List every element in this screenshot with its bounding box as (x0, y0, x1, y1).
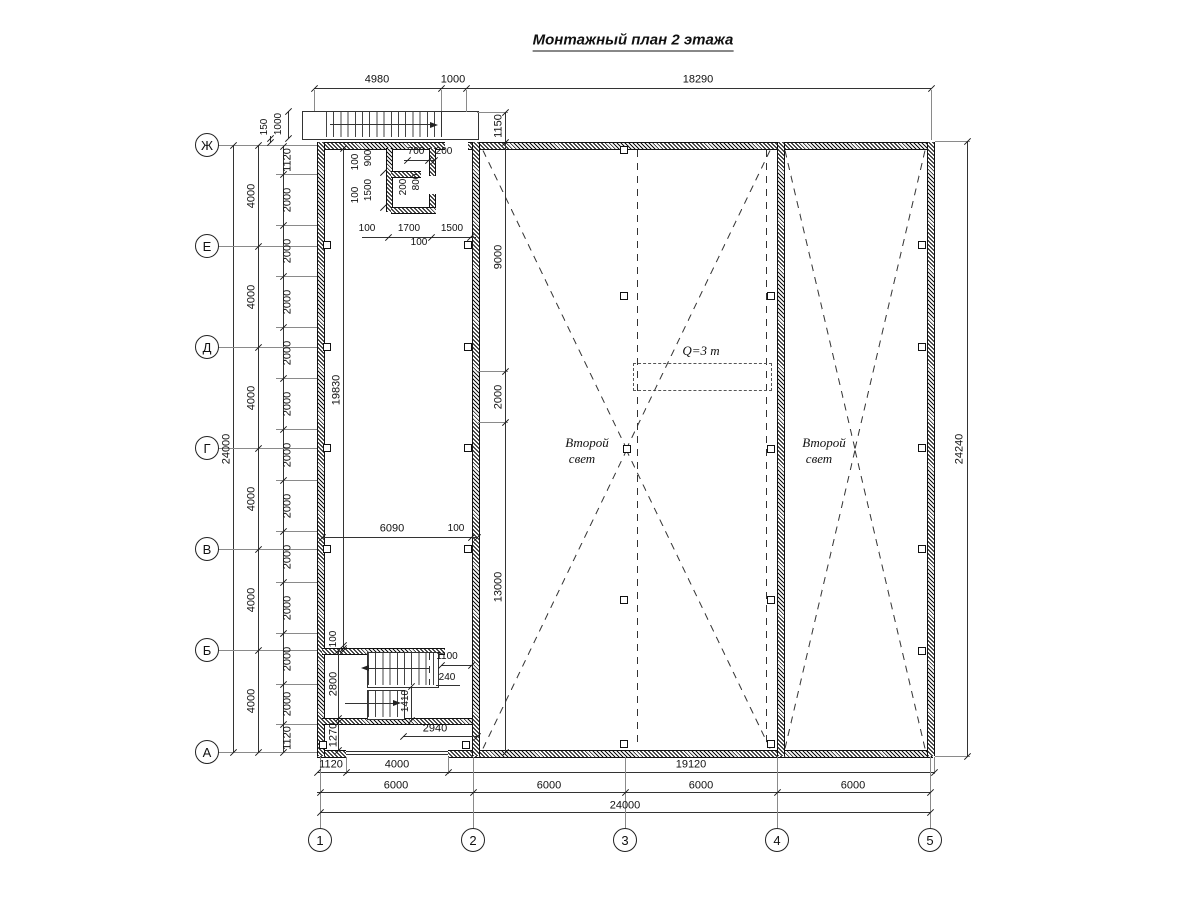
second-light-label: свет (806, 451, 832, 467)
pilaster-marker (918, 241, 926, 249)
dim-label: 4000 (247, 285, 258, 309)
pilaster-marker (319, 741, 327, 749)
dim-label: 100 (351, 187, 361, 204)
dim-label: 4000 (247, 689, 258, 713)
dim-label: 2000 (494, 385, 505, 409)
stair-direction-arrow (430, 122, 438, 128)
dim-line (505, 112, 506, 752)
brace-line (785, 449, 856, 748)
stair-direction-arrow (361, 665, 369, 671)
dim-label: 1500 (441, 224, 463, 234)
dim-label: 2000 (283, 596, 294, 620)
column-marker (620, 146, 628, 154)
dim-line (288, 111, 289, 138)
axis-leader (218, 650, 317, 651)
dim-label: 4000 (247, 588, 258, 612)
pilaster-marker (918, 545, 926, 553)
dim-label: 2000 (283, 494, 294, 518)
pilaster-marker (918, 647, 926, 655)
dim-label: 2000 (283, 290, 294, 314)
pilaster-marker (464, 343, 472, 351)
pilaster-marker (464, 545, 472, 553)
extension-line (441, 90, 442, 111)
axis-circle-row: Б (195, 638, 219, 662)
pilaster-marker (323, 545, 331, 553)
dim-label: 240 (439, 673, 456, 683)
stair-break-line (429, 653, 430, 685)
dim-label: 100 (448, 524, 465, 534)
room-wall-bottom (391, 207, 436, 214)
dim-label: 24000 (222, 434, 233, 465)
dim-label: 6000 (689, 781, 713, 792)
south-opening-line (346, 751, 448, 752)
dim-label: 4000 (247, 487, 258, 511)
dim-line (441, 665, 471, 666)
dim-label: 6000 (841, 781, 865, 792)
dim-label: 1120 (283, 726, 294, 750)
dim-label: 6090 (380, 524, 404, 535)
dim-label: 2000 (283, 239, 294, 263)
dim-label: 200 (436, 147, 453, 157)
brace-line (785, 150, 856, 449)
dim-label: 6000 (384, 781, 408, 792)
brace-line (854, 150, 925, 449)
crane-bridge (633, 363, 772, 391)
wall-axis-4 (777, 142, 785, 756)
axis-circle-col: 5 (918, 828, 942, 852)
dim-tick (931, 769, 938, 776)
dim-line (403, 736, 477, 737)
pilaster-marker (323, 343, 331, 351)
dim-label: 100 (329, 631, 339, 648)
pilaster-marker (323, 241, 331, 249)
dim-label: 4980 (365, 75, 389, 86)
dim-label: 4000 (247, 386, 258, 410)
dim-label: 2000 (283, 647, 294, 671)
axis-circle-col: 4 (765, 828, 789, 852)
dim-label: 19120 (676, 760, 707, 771)
wall-south-main (448, 750, 933, 758)
dim-label: 100 (359, 224, 376, 234)
axis-leader (218, 448, 317, 449)
axis-circle-row: А (195, 740, 219, 764)
axis-leader (218, 549, 317, 550)
dim-label: 2000 (283, 392, 294, 416)
pilaster-marker (323, 444, 331, 452)
column-marker (767, 740, 775, 748)
dim-label: 1120 (319, 760, 343, 771)
axis-circle-col: 3 (613, 828, 637, 852)
dim-line (967, 141, 968, 756)
top-stair-direction-line (330, 124, 434, 125)
dim-label: 1120 (283, 148, 294, 172)
axis-circle-row: Ж (195, 133, 219, 157)
axis-circle-row: В (195, 537, 219, 561)
top-stair-edge (441, 112, 442, 137)
dim-label: 13000 (494, 572, 505, 603)
wall-north-main (468, 142, 933, 150)
brace-line (626, 449, 771, 749)
axis-leader (218, 246, 317, 247)
dim-label: 2000 (283, 443, 294, 467)
dim-label: 200 (399, 179, 409, 196)
pilaster-marker (918, 444, 926, 452)
stair-upper-treads (368, 653, 436, 685)
room-wall-left (386, 148, 393, 212)
dim-label: 1000 (274, 113, 284, 135)
dim-line (411, 686, 412, 720)
dim-label: 150 (260, 119, 270, 136)
dim-label: 1150 (494, 114, 505, 138)
stair-direction-line (368, 668, 430, 669)
dim-label: 19830 (332, 375, 343, 406)
pilaster-marker (464, 241, 472, 249)
dim-label: 1500 (364, 179, 374, 201)
second-light-label: Второй (565, 435, 609, 451)
dim-label: 6000 (537, 781, 561, 792)
pilaster-marker (464, 444, 472, 452)
axis-leader (218, 347, 317, 348)
brace-line (626, 150, 771, 450)
dim-label: 4000 (385, 760, 409, 771)
wall-east (927, 142, 935, 756)
second-light-label: свет (569, 451, 595, 467)
stair-direction-line (345, 703, 398, 704)
dim-label: 100 (411, 238, 428, 248)
dim-label: 2800 (329, 672, 340, 696)
dim-label: 900 (364, 150, 374, 167)
dim-line (322, 537, 477, 538)
dim-label: 1270 (329, 723, 340, 747)
column-marker (620, 292, 628, 300)
column-marker (620, 740, 628, 748)
crane-rail-left (637, 150, 638, 748)
axis-circle-col: 2 (461, 828, 485, 852)
dim-label: 800 (412, 174, 422, 191)
floor-plan-drawing: Монтажный план 2 этажа (0, 0, 1200, 900)
column-marker (767, 292, 775, 300)
dim-label: 18290 (683, 75, 714, 86)
pilaster-marker (918, 343, 926, 351)
dim-label: 2000 (283, 341, 294, 365)
dim-label: 24000 (610, 801, 641, 812)
axis-circle-row: Е (195, 234, 219, 258)
dim-label: 2000 (283, 692, 294, 716)
wall-north-left (317, 142, 445, 150)
dim-label: 9000 (494, 245, 505, 269)
axis-circle-row: Г (195, 436, 219, 460)
second-light-label: Второй (802, 435, 846, 451)
extension-line (466, 90, 467, 112)
dim-label: 4000 (247, 184, 258, 208)
dim-label: 2000 (283, 545, 294, 569)
dim-label: 1410 (401, 690, 411, 712)
dim-line (343, 148, 344, 648)
pilaster-marker (462, 741, 470, 749)
extension-line (314, 90, 315, 111)
dim-label: 700 (408, 147, 425, 157)
brace-line (854, 449, 925, 748)
crane-capacity-label: Q=3 т (682, 343, 719, 359)
dim-label: 24240 (955, 434, 966, 465)
dim-line (404, 160, 436, 161)
column-marker (623, 445, 631, 453)
column-marker (767, 596, 775, 604)
dim-label: 1700 (398, 224, 420, 234)
south-opening-line (346, 754, 448, 755)
dim-label: 1100 (436, 652, 458, 662)
extension-line (931, 90, 932, 140)
page-title: Монтажный план 2 этажа (533, 33, 734, 52)
column-marker (767, 445, 775, 453)
dim-line (314, 88, 931, 89)
dim-label: 2940 (423, 724, 447, 735)
leader-line (436, 685, 460, 686)
dim-label: 1000 (441, 75, 465, 86)
axis-circle-col: 1 (308, 828, 332, 852)
column-marker (620, 596, 628, 604)
dim-label: 100 (351, 154, 361, 171)
axis-circle-row: Д (195, 335, 219, 359)
dim-label: 2000 (283, 188, 294, 212)
dim-tick (285, 135, 292, 142)
